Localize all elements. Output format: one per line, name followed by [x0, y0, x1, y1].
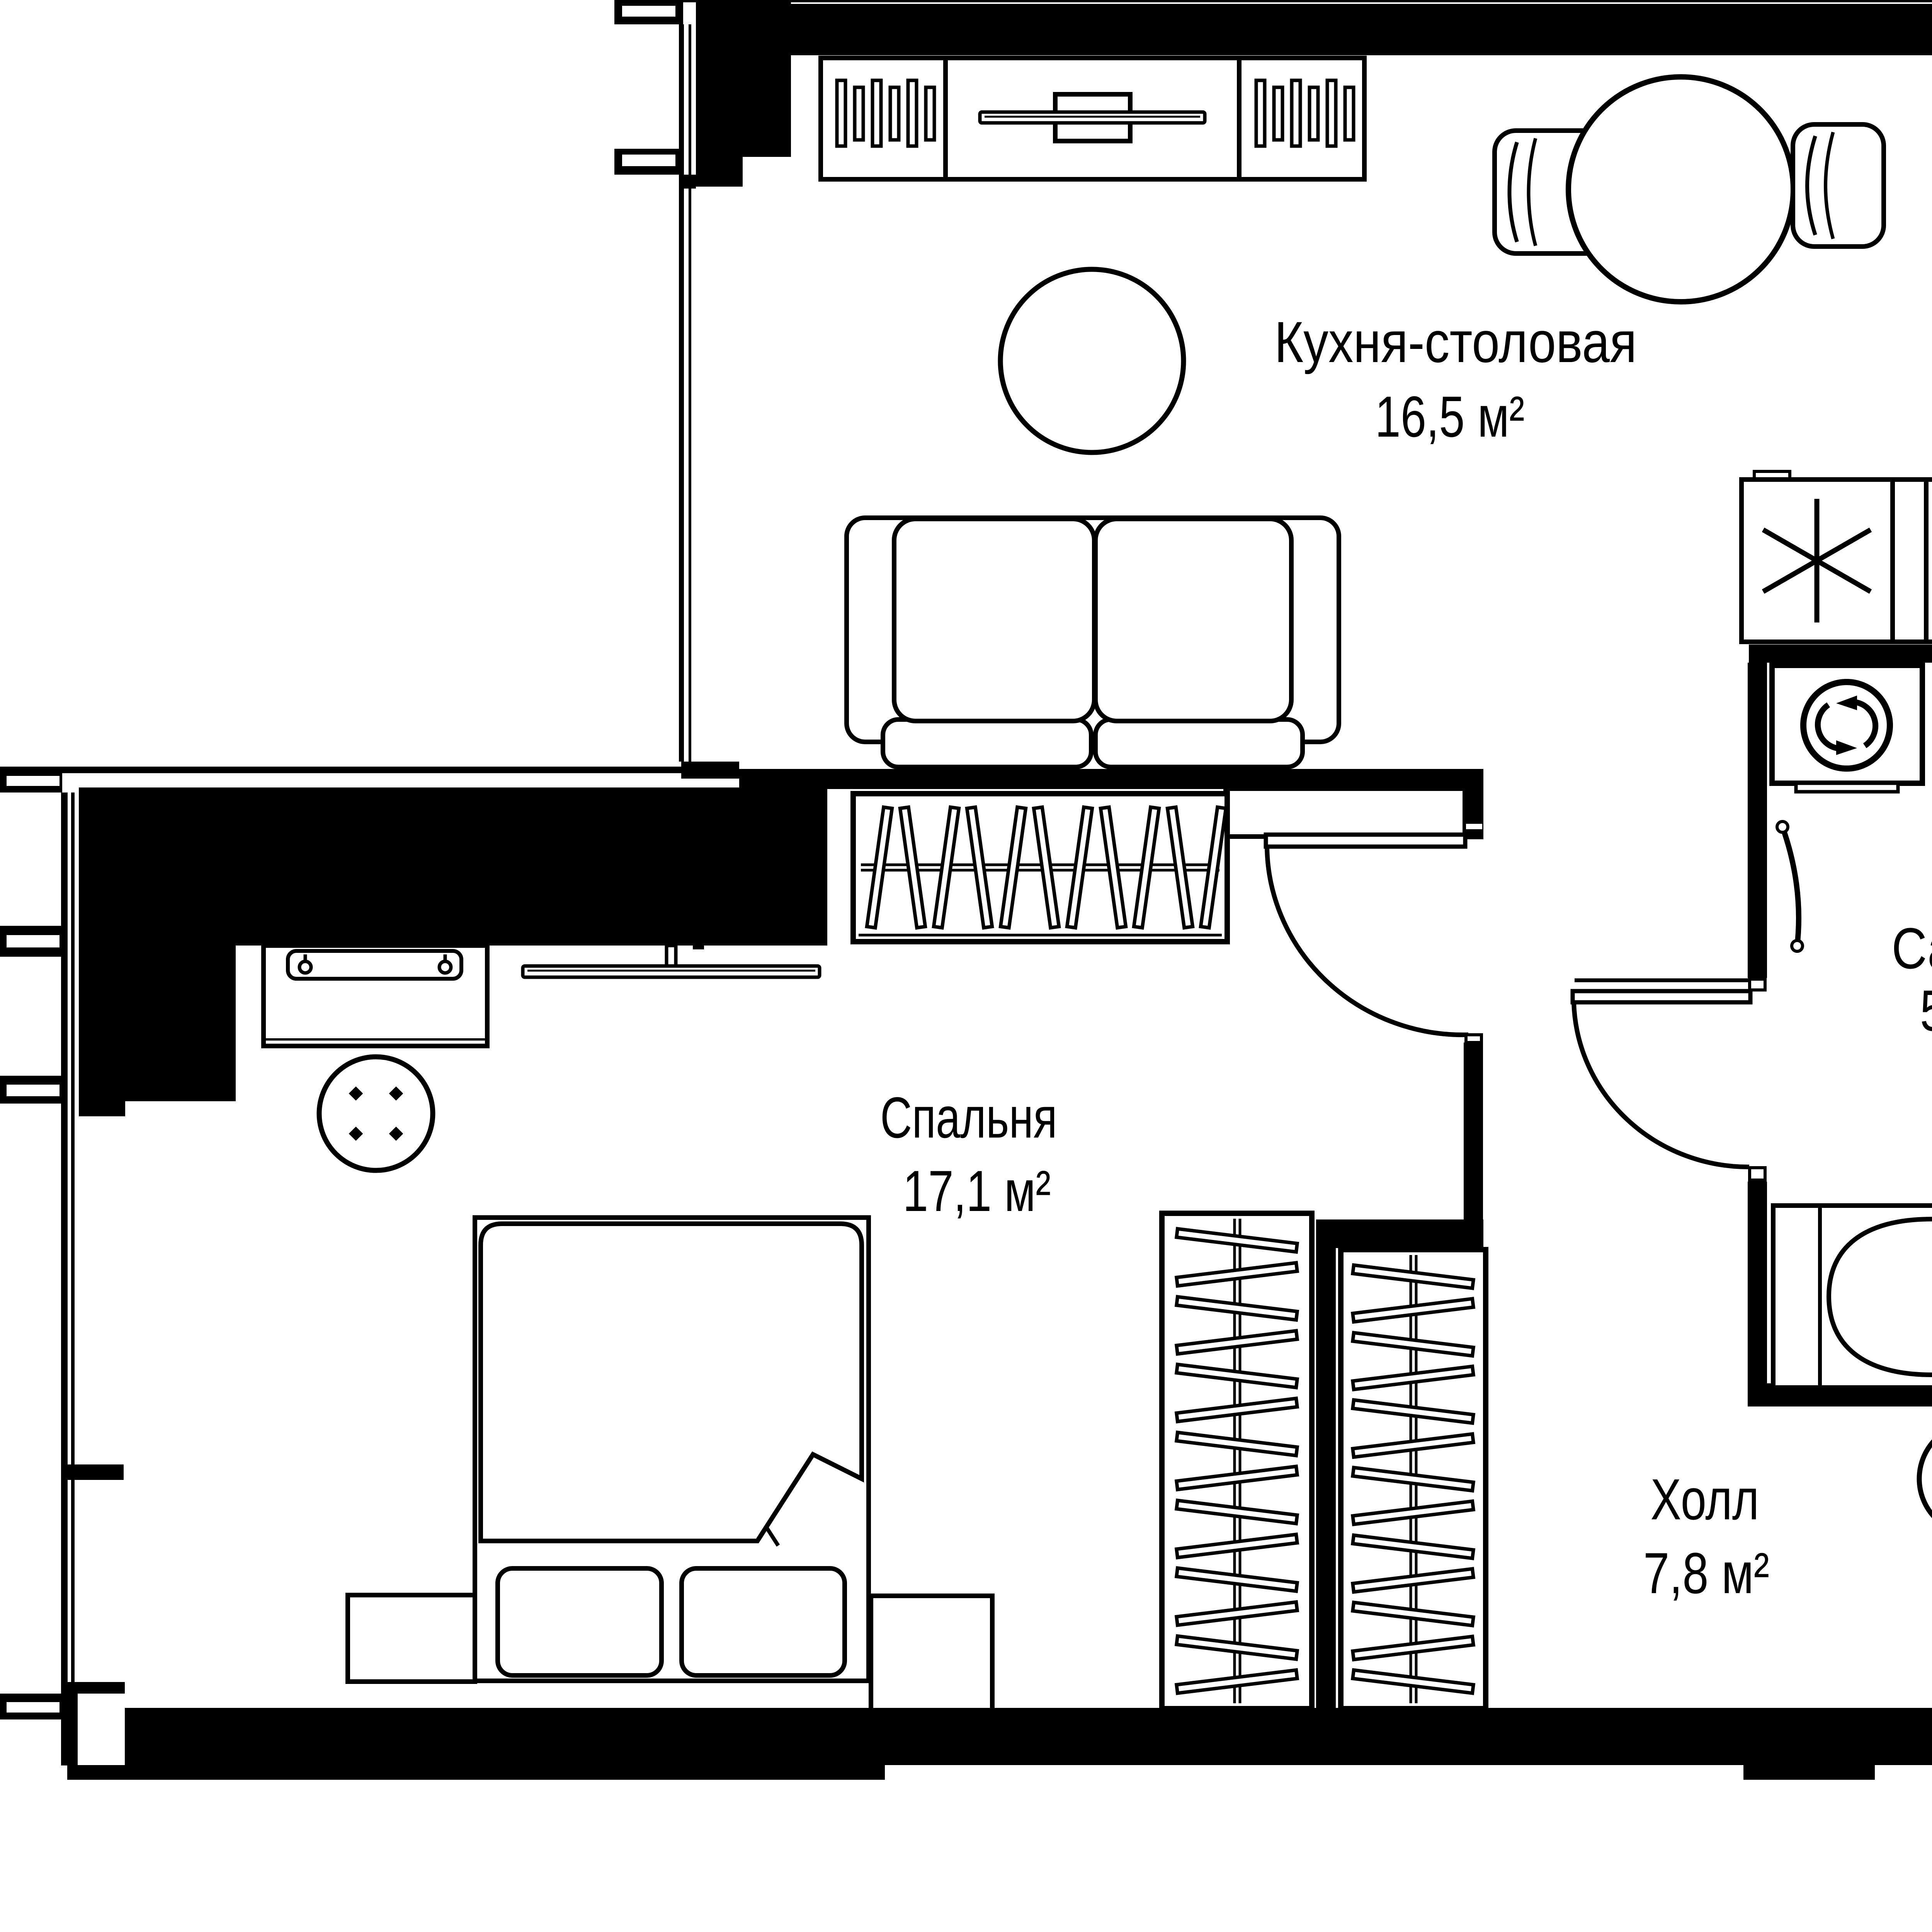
svg-text:17,1 м²: 17,1 м² [903, 1158, 1051, 1223]
svg-text:Кухня-столовая: Кухня-столовая [1274, 310, 1637, 374]
svg-text:Спальня: Спальня [880, 1085, 1057, 1150]
svg-text:7,8 м²: 7,8 м² [1643, 1541, 1769, 1605]
svg-text:16,5 м²: 16,5 м² [1375, 384, 1525, 449]
svg-text:5,4 м²: 5,4 м² [1920, 978, 1932, 1043]
svg-text:Санузел: Санузел [1892, 916, 1932, 981]
svg-text:Холл: Холл [1651, 1467, 1759, 1532]
